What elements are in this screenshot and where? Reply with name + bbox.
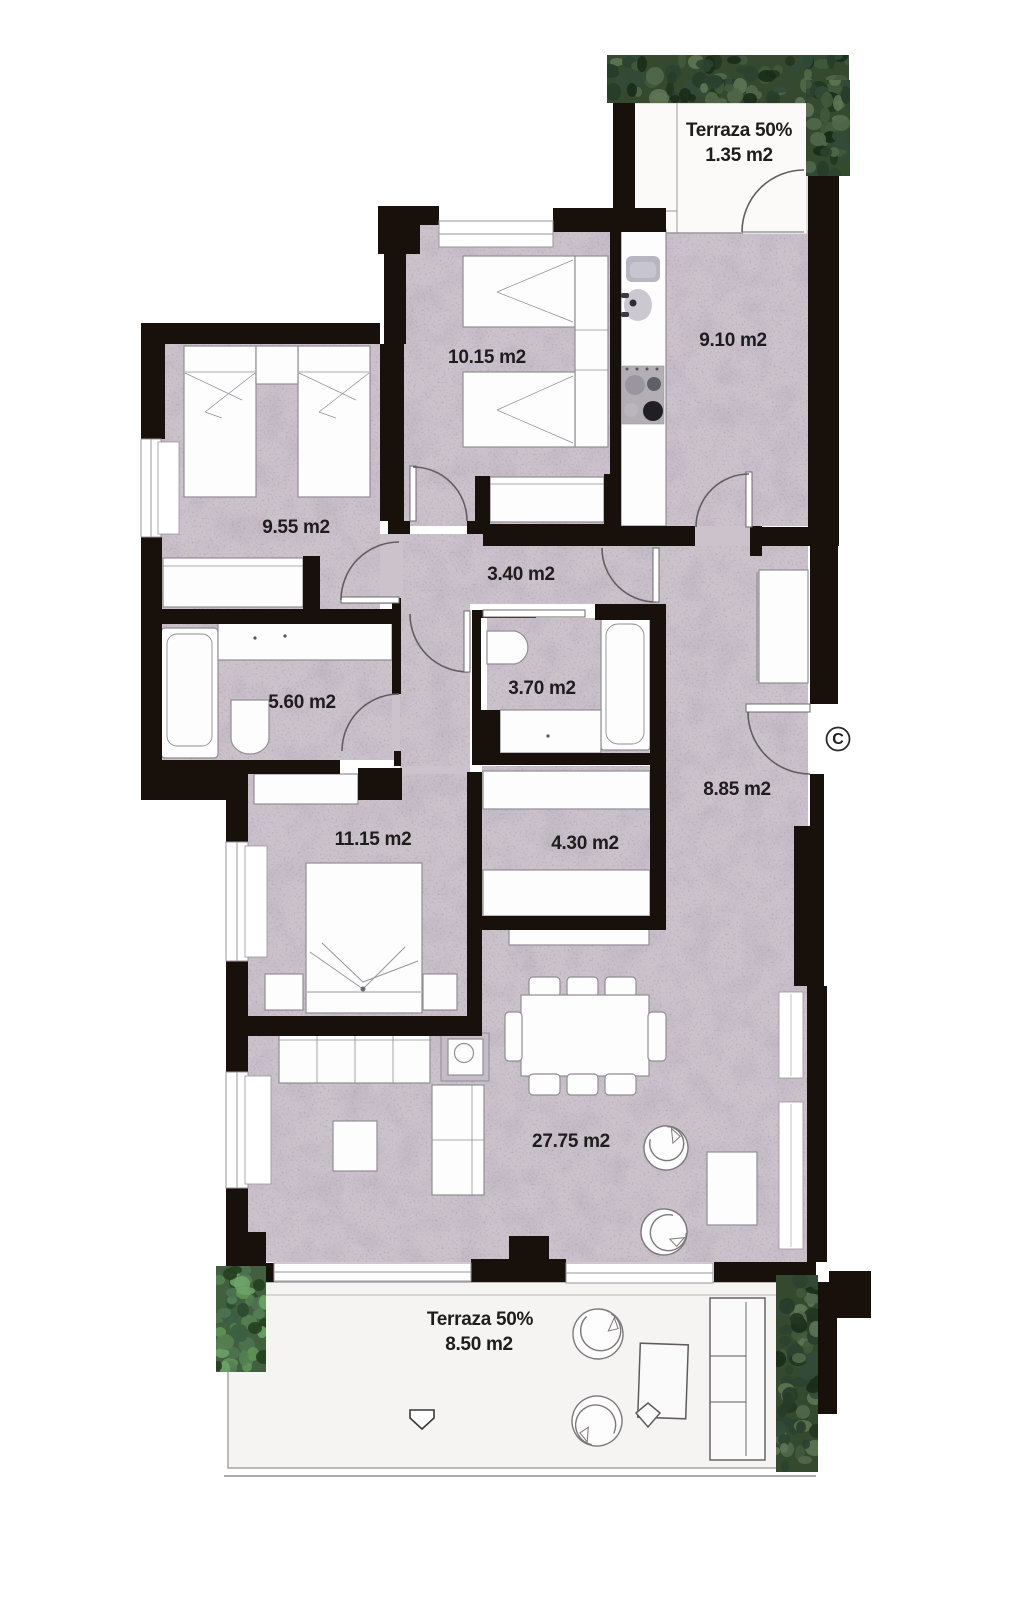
svg-text:9.10 m2: 9.10 m2: [699, 330, 767, 351]
svg-text:9.55 m2: 9.55 m2: [262, 517, 330, 538]
svg-text:8.50 m2: 8.50 m2: [445, 1334, 513, 1355]
svg-text:Terraza 50%: Terraza 50%: [686, 120, 793, 141]
svg-text:11.15 m2: 11.15 m2: [335, 829, 412, 850]
svg-text:3.40 m2: 3.40 m2: [487, 564, 555, 585]
svg-text:8.85 m2: 8.85 m2: [703, 779, 771, 800]
svg-text:3.70 m2: 3.70 m2: [508, 678, 576, 699]
svg-text:27.75 m2: 27.75 m2: [532, 1131, 610, 1152]
svg-text:C: C: [832, 731, 844, 748]
svg-text:1.35 m2: 1.35 m2: [705, 145, 773, 166]
svg-text:Terraza 50%: Terraza 50%: [427, 1309, 534, 1330]
svg-text:5.60 m2: 5.60 m2: [268, 692, 336, 713]
svg-text:10.15 m2: 10.15 m2: [448, 347, 526, 368]
svg-text:4.30 m2: 4.30 m2: [551, 833, 619, 854]
